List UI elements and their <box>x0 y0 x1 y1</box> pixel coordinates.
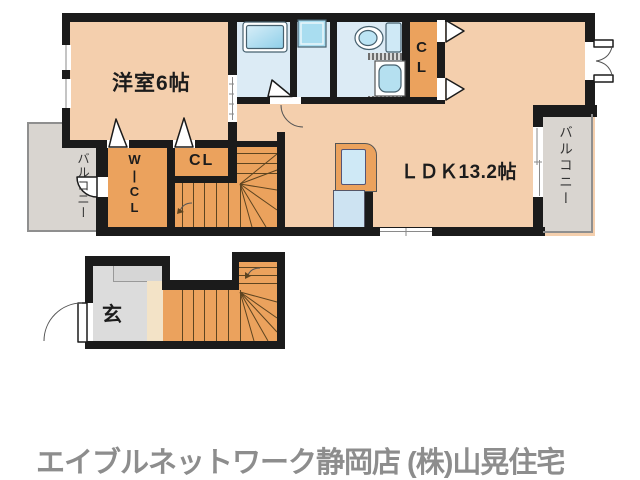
closet-upper-label: CL <box>413 39 430 79</box>
wall <box>237 97 445 104</box>
entrance-label: 玄 <box>102 298 122 327</box>
wall <box>62 13 595 22</box>
door-opening <box>107 140 129 148</box>
door-opening <box>270 97 301 104</box>
door-opening <box>437 20 445 42</box>
wall <box>62 140 237 148</box>
ldk-label: ＬＤＫ13.2帖 <box>400 157 517 184</box>
balcony-left-floor <box>29 124 62 231</box>
wall <box>290 13 297 104</box>
wall <box>230 141 283 147</box>
shoe-cabinet <box>113 266 164 282</box>
refrigerator-space <box>333 190 365 230</box>
stairs-2f-upper <box>237 147 277 183</box>
window <box>380 228 432 236</box>
wall <box>162 280 238 290</box>
balcony-left-label: バルコニー <box>73 152 92 220</box>
stairs-1f-lower <box>163 290 277 341</box>
door-opening <box>437 78 445 100</box>
wall <box>85 341 285 349</box>
door-opening <box>96 177 108 197</box>
sliding-door <box>228 75 237 122</box>
wall <box>402 22 410 104</box>
wall <box>533 105 597 117</box>
balcony-right-label: バルコニー <box>554 125 574 208</box>
stairs-1f-upper <box>239 262 277 291</box>
wall <box>365 192 373 228</box>
wall <box>96 227 545 236</box>
door-opening <box>173 140 195 148</box>
kitchen-sink-icon <box>341 149 366 185</box>
closet-mid-label: CL <box>189 152 214 170</box>
walkin-closet-label: W|CL <box>127 152 142 216</box>
floorplan-canvas: 洋室6帖 ＬＤＫ13.2帖 CL CL W|CL バルコニー バルコニー 玄 エ… <box>0 0 640 480</box>
wall <box>232 262 239 290</box>
wall <box>85 256 93 303</box>
front-door-opening <box>85 303 93 341</box>
bedroom-label: 洋室6帖 <box>112 67 191 97</box>
window <box>61 45 71 70</box>
wall <box>277 252 285 349</box>
wall <box>330 13 337 104</box>
sliding-door-track <box>368 53 402 60</box>
window <box>61 79 71 108</box>
realtor-footer-text: エイブルネットワーク静岡店 (株)山晃住宅 <box>36 439 564 480</box>
casement-window <box>585 42 595 80</box>
wall <box>85 256 170 266</box>
wall <box>167 148 175 227</box>
stairs-2f-lower <box>175 183 277 227</box>
entrance-hall-floor <box>147 281 163 341</box>
wall <box>167 176 237 183</box>
balcony-glass-door <box>533 127 543 197</box>
